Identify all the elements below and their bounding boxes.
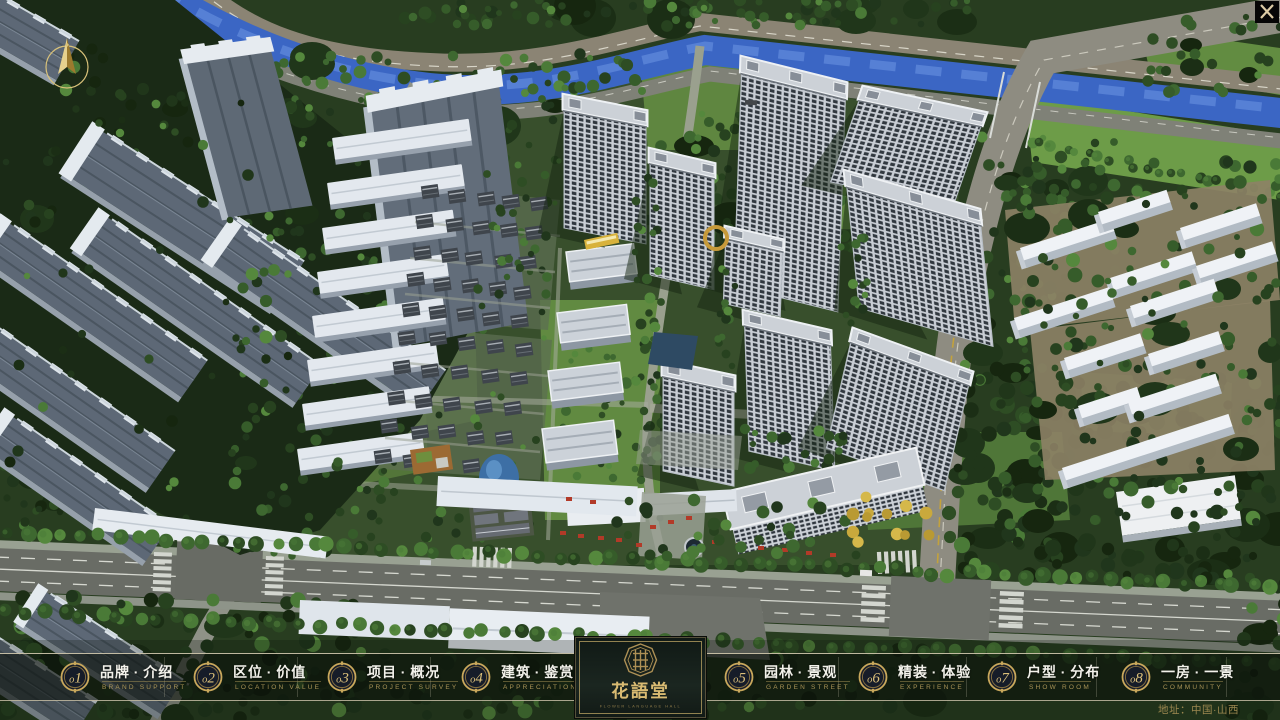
svg-text:花語堂: 花語堂 [611,681,670,701]
svg-text:FLOWER LANGUAGE HALL: FLOWER LANGUAGE HALL [600,704,682,709]
